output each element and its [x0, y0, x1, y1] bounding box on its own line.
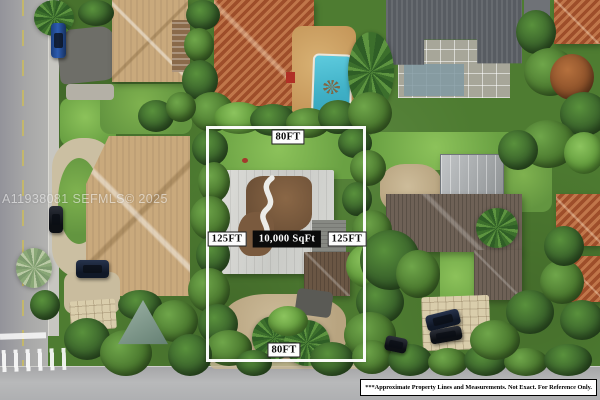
tree-canopy: [30, 290, 60, 320]
tree-canopy: [428, 348, 468, 376]
courtyard-palm: [476, 208, 518, 248]
dimension-label-left: 125FT: [208, 232, 247, 247]
enclosed-pool: [404, 64, 464, 96]
palm-tree-pale: [16, 248, 52, 288]
dimension-label-bottom: 80FT: [267, 343, 300, 358]
car-windshield: [83, 265, 103, 273]
roof-corner-terracotta: [554, 0, 600, 44]
tree-canopy: [544, 226, 584, 266]
entry-walk: [66, 84, 114, 100]
car-windshield: [54, 33, 63, 48]
tree-canopy: [498, 130, 538, 170]
car-windshield: [52, 214, 60, 226]
dimension-label-right: 125FT: [328, 232, 367, 247]
tree-canopy: [78, 0, 114, 26]
palm-shadow: [323, 80, 340, 95]
neighbor-brown-roof-wing: [474, 250, 522, 300]
chimney-red: [286, 72, 295, 83]
crosswalk: [2, 348, 67, 372]
car-windshield: [436, 330, 456, 339]
parked-car-dark: [49, 206, 63, 233]
area-label: 10,000 SqFt: [253, 231, 321, 248]
listing-photo: 80FT 125FT 10,000 SqFt 125FT 80FT A11938…: [0, 0, 600, 400]
tree-canopy: [396, 250, 440, 298]
street-center-line: [22, 0, 24, 368]
car-windshield: [432, 314, 453, 326]
disclaimer-banner: ***Approximate Property Lines and Measur…: [360, 379, 597, 396]
mls-watermark: A11938081 SEFMLS© 2025: [2, 192, 168, 206]
tree-canopy: [166, 92, 196, 122]
dimension-label-top: 80FT: [271, 130, 304, 145]
tree-canopy: [470, 320, 520, 360]
tree-canopy: [540, 260, 584, 304]
parked-car-blue: [51, 23, 66, 58]
tree-canopy: [544, 344, 592, 376]
driveway-car-navy: [76, 260, 109, 278]
tree-canopy: [564, 132, 600, 174]
tree-canopy: [184, 28, 214, 62]
tree-canopy: [560, 300, 600, 340]
tree-canopy: [186, 0, 220, 30]
car-windshield: [389, 340, 403, 349]
